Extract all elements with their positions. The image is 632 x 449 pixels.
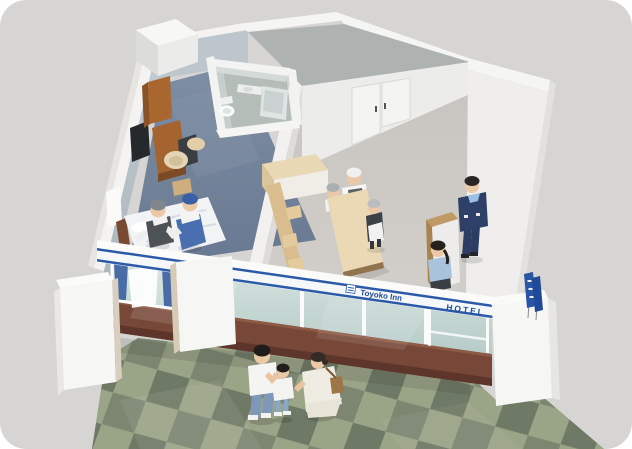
shoe-left	[461, 254, 469, 258]
illustration-canvas: Toyoko Inn HOTEL	[0, 0, 632, 449]
door-leaf-right	[382, 78, 410, 127]
flag-mark-2	[529, 288, 533, 290]
figure-shadow	[274, 417, 292, 423]
hair	[465, 176, 480, 186]
entrance-frame-right	[486, 316, 489, 353]
shoe-left	[248, 415, 258, 420]
flag-mark-1	[528, 280, 532, 282]
figure-shadow	[367, 247, 385, 253]
shoe-right	[283, 411, 291, 415]
hair-bun	[322, 359, 328, 365]
tv-screen	[130, 121, 150, 162]
entrance-box-front	[492, 298, 552, 406]
pillar-middle	[170, 256, 236, 354]
shoe-left	[274, 412, 282, 416]
pillar-left	[54, 272, 122, 396]
scene-root: Toyoko Inn HOTEL	[0, 0, 632, 449]
bathtub-inner	[263, 90, 284, 114]
brand-logo-box	[346, 284, 356, 293]
sink-basin	[243, 87, 253, 92]
mullion-3	[424, 307, 428, 345]
round-table	[187, 138, 205, 151]
mullion-2	[362, 298, 366, 336]
brand-logo	[346, 284, 356, 293]
flag-mark-3	[530, 296, 534, 298]
leg-right	[377, 239, 381, 247]
cuff-right	[476, 213, 480, 216]
cap-gray	[150, 200, 166, 211]
hair	[254, 345, 271, 357]
leg-left	[370, 241, 374, 249]
armchair-seat	[169, 156, 183, 166]
door-handle-left	[375, 106, 377, 112]
leg-left	[276, 400, 281, 414]
hotel-cutaway-scene: Toyoko Inn HOTEL	[0, 0, 632, 449]
door-handle-right	[384, 103, 386, 109]
cap-blue	[182, 194, 198, 205]
unit-bathroom	[206, 56, 302, 138]
shoulder-bag	[330, 376, 344, 394]
wardrobe-front	[148, 76, 172, 124]
cuff-left	[464, 215, 468, 218]
leg-right	[284, 399, 289, 413]
shoe-right	[470, 252, 478, 256]
cap-white	[347, 168, 362, 178]
cap-gray	[368, 199, 381, 208]
entrance-box	[488, 290, 560, 406]
hair	[277, 364, 290, 373]
mullion-1	[300, 289, 304, 328]
pillar-middle-front	[176, 256, 236, 352]
pillar-left-front	[60, 280, 116, 390]
cap-gray	[327, 183, 340, 192]
hair	[431, 241, 446, 251]
toilet-seat	[223, 108, 232, 114]
entrance-frame-left	[428, 308, 431, 346]
shoe-right	[261, 413, 271, 418]
